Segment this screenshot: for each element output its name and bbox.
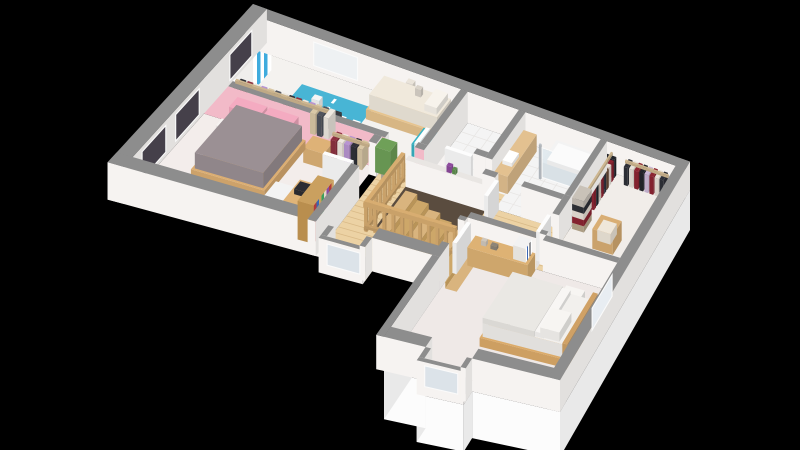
floorplan-3d-render xyxy=(0,0,800,450)
shower-pole xyxy=(539,143,542,179)
kids-bed-plush-2 xyxy=(415,85,423,98)
scene-canvas xyxy=(0,0,800,450)
